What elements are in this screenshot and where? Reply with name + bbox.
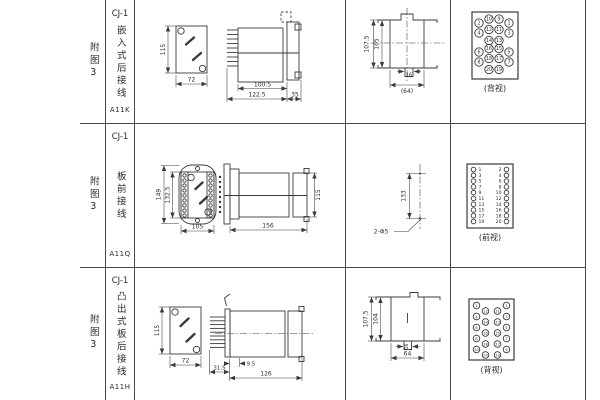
terminal: 14 (496, 202, 509, 208)
terminal: 8 (473, 335, 480, 342)
svg-text:2: 2 (475, 303, 478, 308)
dim-text: 72 (182, 358, 190, 365)
terminal: 10 (496, 190, 509, 196)
dim-text: 100.5 (254, 82, 271, 89)
svg-text:1: 1 (505, 303, 508, 308)
terminal: 17 (471, 213, 484, 219)
svg-text:20: 20 (483, 352, 488, 357)
svg-text:3: 3 (507, 31, 510, 37)
terminal: 9 (495, 15, 503, 23)
dim-text: 107.5 (363, 310, 370, 327)
svg-text:12: 12 (496, 196, 502, 202)
terminal: 18 (485, 54, 493, 62)
terminal: 6 (499, 179, 509, 185)
row1-cutout-view: 107.5 105 16 (64) (364, 8, 445, 95)
mounting-hole (172, 309, 178, 315)
code-label: A11K (110, 106, 130, 114)
hole-callout: 2-Φ5 (374, 220, 421, 236)
dim-front-height: 115 (160, 26, 176, 73)
terminal: 5 (471, 179, 481, 185)
terminal: 14 (485, 36, 493, 44)
dim-cutout-inner: 105 (374, 21, 383, 68)
dim-pin-depth: 31.5 (210, 350, 230, 381)
svg-text:8: 8 (477, 60, 480, 66)
relay-body (238, 28, 283, 82)
dim-text: 115 (160, 44, 167, 56)
row1-terminal-view: 2 10 9 1 4 12 11 3 14 13 6 16 15 5 8 18 … (472, 12, 518, 93)
dim-length: 156 (230, 219, 307, 233)
fig-cell-row2: 附图3 (81, 123, 105, 267)
svg-text:8: 8 (475, 336, 478, 341)
terminal: 12 (485, 25, 493, 33)
svg-text:3: 3 (479, 173, 482, 179)
dim-inner-height: 132.5 (165, 172, 182, 218)
terminal-pins (210, 317, 225, 347)
svg-text:12: 12 (486, 27, 492, 33)
terminal: 7 (503, 335, 510, 342)
terminal: 8 (475, 58, 483, 66)
svg-text:4: 4 (477, 31, 480, 37)
mounting-hole (178, 28, 184, 34)
dim-text: 16 (406, 73, 412, 79)
svg-text:11: 11 (496, 27, 502, 33)
terminal: 2 (473, 302, 480, 309)
svg-text:19: 19 (496, 67, 502, 73)
terminal: 14 (482, 319, 489, 326)
dim-text: 72 (188, 77, 196, 84)
svg-text:14: 14 (496, 202, 502, 208)
row2-mounting-holes: 133 2-Φ5 (374, 164, 426, 236)
svg-text:6: 6 (499, 179, 502, 185)
svg-text:5: 5 (505, 325, 508, 330)
terminal: 12 (496, 196, 509, 202)
mount-type-label: 嵌入式后接线 (115, 25, 125, 100)
dim-text: 126 (260, 371, 272, 378)
terminal: 2 (475, 19, 483, 27)
svg-text:18: 18 (483, 341, 488, 346)
hole-label: 2-Φ5 (374, 229, 389, 236)
terminal: 1 (505, 19, 513, 27)
code-label: A11Q (109, 250, 130, 258)
terminal: 5 (503, 324, 510, 331)
fig-cell-row1: 附图3 (81, 0, 105, 123)
row3-side-view: 31.5 9.5 126 (210, 294, 314, 381)
terminal: 16 (485, 44, 493, 52)
dim-hole-pitch: 133 (401, 174, 410, 219)
mounting-hole (199, 65, 205, 71)
mount-type-label: 凸出式板后接线 (115, 291, 125, 379)
label-cell-row2: CJ-1 板前接线 A11Q (106, 123, 134, 267)
figure-canvas: 115 72 100.5 (0, 0, 600, 400)
fig-label: 附图3 (88, 314, 98, 353)
terminal: 15 (494, 330, 501, 337)
model-label: CJ-1 (112, 276, 129, 286)
terminal: 19 (495, 65, 503, 73)
dim-text: 104 (373, 313, 380, 325)
terminal: 16 (496, 208, 509, 214)
svg-text:20: 20 (486, 67, 492, 73)
svg-text:16: 16 (483, 330, 488, 335)
dim-text: 9.5 (247, 362, 256, 368)
dim-tab: 16 (396, 344, 420, 350)
svg-text:7: 7 (505, 336, 508, 341)
svg-text:19: 19 (495, 352, 500, 357)
svg-text:1: 1 (479, 167, 482, 173)
terminal: 20 (485, 65, 493, 73)
row3-front-view: 115 72 (154, 307, 201, 368)
dim-text: 115 (154, 325, 161, 337)
panel-outline (176, 26, 207, 73)
row3-cutout-view: 107.5 104 16 64 (363, 293, 441, 362)
terminal: 8 (499, 185, 509, 191)
terminal: 15 (495, 44, 503, 52)
label-cell-row1: CJ-1 嵌入式后接线 A11K (106, 0, 134, 123)
terminal: 17 (495, 54, 503, 62)
hole-center (419, 172, 421, 174)
terminal: 10 (485, 15, 493, 23)
mounting-hole (193, 346, 199, 352)
row2-side-view: 156 115 (219, 164, 322, 233)
front-plate (224, 164, 230, 224)
relay-body (239, 173, 289, 217)
row1-side-view: 100.5 122.5 35 (227, 12, 301, 102)
dim-front-width: 72 (170, 356, 201, 368)
dim-text: 133 (401, 190, 408, 202)
dim-text: 105 (192, 224, 204, 231)
label-cell-row3: CJ-1 凸出式板后接线 A11H (106, 267, 134, 400)
terminal: 7 (471, 185, 481, 191)
terminal-strip-dots (183, 174, 212, 217)
svg-text:19: 19 (479, 219, 485, 225)
svg-text:8: 8 (499, 185, 502, 191)
row2-front-view: 149 132.5 105 (156, 165, 217, 234)
mount-type-label: 板前接线 (115, 171, 125, 221)
fig-cell-row3: 附图3 (81, 267, 105, 400)
terminal: 18 (496, 213, 509, 219)
terminal: 11 (494, 308, 501, 315)
terminal: 11 (471, 196, 484, 202)
terminal: 16 (482, 330, 489, 337)
svg-text:17: 17 (496, 56, 502, 62)
svg-text:13: 13 (496, 38, 502, 44)
row2-terminal-view: 1 3 5 7 9 11 13 15 17 19 2 4 6 8 10 12 1… (467, 164, 513, 242)
dim-tab: 16 (397, 72, 421, 79)
svg-text:16: 16 (486, 46, 492, 52)
terminal: 18 (482, 341, 489, 348)
row3-terminal-view: 2 4 6 8 10 12 14 16 18 20 11 13 15 17 19… (469, 299, 514, 375)
svg-text:13: 13 (495, 319, 500, 324)
view-caption: (背视) (484, 83, 506, 93)
dim-text: (64) (401, 88, 413, 95)
latch-dashed (281, 12, 291, 22)
dim-text: 115 (315, 189, 322, 201)
svg-text:15: 15 (495, 330, 500, 335)
svg-text:17: 17 (479, 213, 485, 219)
svg-text:2: 2 (499, 167, 502, 173)
svg-text:14: 14 (486, 38, 492, 44)
screw (196, 167, 200, 171)
svg-text:6: 6 (475, 325, 478, 330)
svg-text:4: 4 (475, 314, 478, 319)
svg-text:15: 15 (496, 46, 502, 52)
svg-text:4: 4 (499, 173, 502, 179)
view-caption: (前视) (479, 232, 501, 242)
svg-text:20: 20 (496, 219, 502, 225)
svg-text:3: 3 (505, 314, 508, 319)
terminal: 20 (496, 219, 509, 225)
model-label: CJ-1 (112, 9, 129, 19)
terminal: 20 (482, 352, 489, 359)
terminal: 19 (471, 219, 484, 225)
svg-text:11: 11 (479, 196, 485, 202)
dim-text: 132.5 (165, 186, 172, 203)
terminal: 7 (505, 58, 513, 66)
dim-length: 126 (230, 358, 303, 381)
terminal: 6 (475, 48, 483, 56)
dim-flange-depth: 35 (287, 80, 301, 102)
svg-text:9: 9 (479, 190, 482, 196)
terminal: 11 (495, 25, 503, 33)
dim-text: 31.5 (213, 366, 226, 372)
terminal: 17 (494, 341, 501, 348)
clip-hook (225, 294, 231, 306)
terminal: 4 (475, 29, 483, 37)
view-caption: (背视) (480, 365, 502, 375)
panel-outline (170, 307, 201, 354)
dim-text: 35 (291, 92, 299, 99)
terminal: 2 (499, 167, 509, 173)
terminal: 9 (471, 190, 481, 196)
dim-cutout-inner: 104 (373, 298, 381, 341)
screw (196, 219, 200, 223)
svg-text:9: 9 (505, 347, 508, 352)
svg-text:18: 18 (496, 213, 502, 219)
flange (287, 22, 299, 80)
dim-text: 149 (156, 189, 163, 201)
svg-text:5: 5 (479, 179, 482, 185)
hole-center (419, 217, 421, 219)
svg-text:11: 11 (495, 308, 500, 313)
dim-height: 115 (307, 173, 322, 217)
svg-text:10: 10 (496, 190, 502, 196)
relay-body (230, 311, 285, 357)
code-label: A11H (110, 383, 131, 391)
terminal: 4 (499, 173, 509, 179)
dim-text: 64 (404, 351, 412, 358)
dim-front-width: 105 (181, 224, 214, 235)
terminal-pins (227, 30, 238, 66)
svg-text:7: 7 (507, 60, 510, 66)
svg-text:17: 17 (495, 341, 500, 346)
dim-text: 105 (374, 38, 381, 50)
terminal: 19 (494, 352, 501, 359)
svg-text:15: 15 (479, 208, 485, 214)
svg-text:7: 7 (479, 185, 482, 191)
dim-text: 122.5 (248, 92, 265, 99)
dim-text: 156 (262, 223, 274, 230)
svg-text:9: 9 (497, 17, 500, 23)
svg-text:1: 1 (507, 21, 510, 27)
terminal: 12 (482, 308, 489, 315)
svg-text:2: 2 (477, 21, 480, 27)
terminal-dots (219, 176, 221, 213)
dim-text: 107.5 (364, 35, 371, 52)
dim-front-height: 115 (154, 307, 170, 354)
svg-text:18: 18 (486, 56, 492, 62)
mounting-hole (188, 174, 194, 180)
svg-text:5: 5 (507, 50, 510, 56)
fig-label: 附图3 (88, 176, 98, 215)
terminal: 6 (473, 324, 480, 331)
terminal: 13 (494, 319, 501, 326)
svg-text:13: 13 (479, 202, 485, 208)
fig-label: 附图3 (88, 42, 98, 81)
row1-front-view: 115 72 (160, 26, 207, 87)
svg-text:12: 12 (483, 308, 488, 313)
svg-text:10: 10 (474, 347, 479, 352)
terminal: 5 (505, 48, 513, 56)
svg-text:14: 14 (483, 319, 488, 324)
terminal: 3 (471, 173, 481, 179)
terminal: 13 (471, 202, 484, 208)
terminal: 9 (503, 346, 510, 353)
model-label: CJ-1 (112, 132, 129, 142)
terminal: 15 (471, 208, 484, 214)
dim-text: 16 (404, 344, 410, 350)
terminal: 3 (503, 313, 510, 320)
terminal: 10 (473, 346, 480, 353)
terminal: 3 (505, 29, 513, 37)
dim-front-width: 72 (176, 75, 207, 87)
terminal: 4 (473, 313, 480, 320)
terminal: 13 (495, 36, 503, 44)
terminal: 1 (503, 302, 510, 309)
svg-text:10: 10 (486, 17, 492, 23)
svg-text:6: 6 (477, 50, 480, 56)
svg-text:16: 16 (496, 208, 502, 214)
terminal: 1 (471, 167, 481, 173)
